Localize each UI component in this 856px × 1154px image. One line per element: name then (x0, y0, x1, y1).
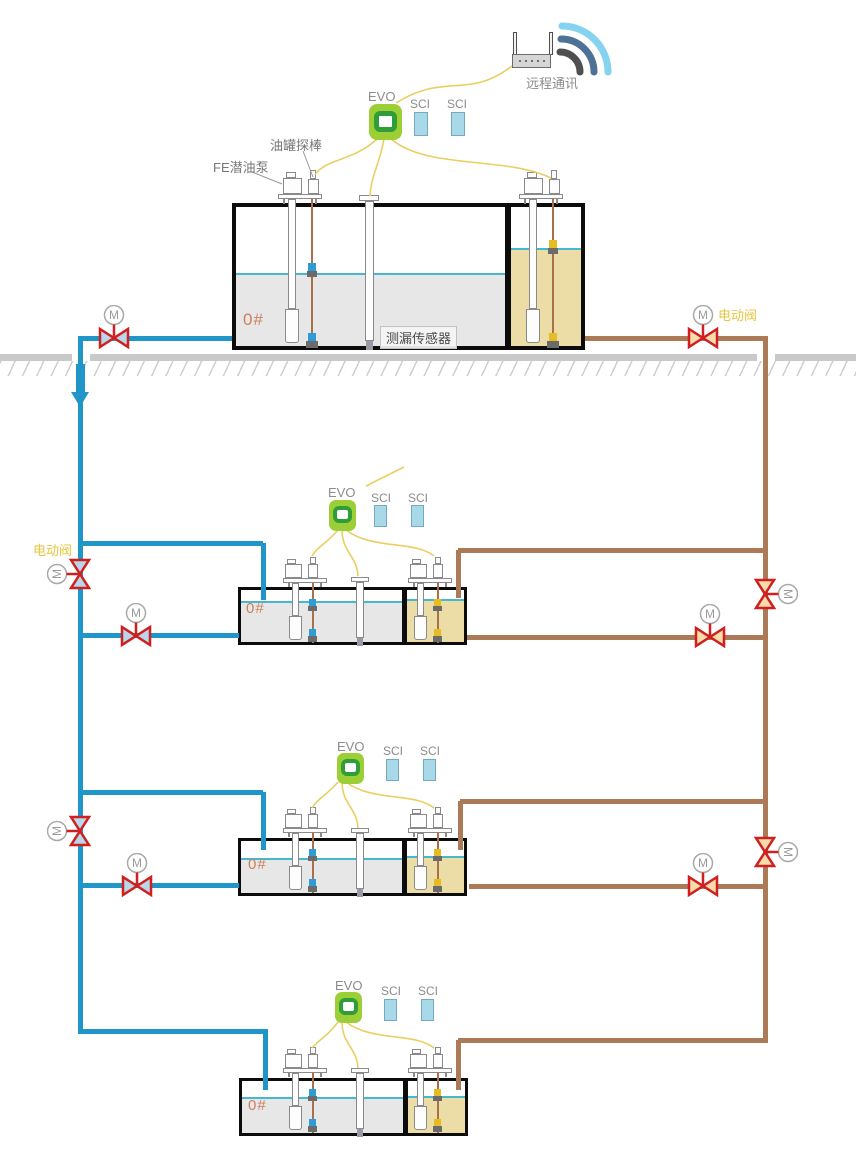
pipe-body (365, 201, 374, 341)
evo-controller (329, 500, 356, 531)
float-sensor (549, 333, 557, 341)
tank-probe-head (433, 814, 443, 828)
sci-module (423, 759, 436, 781)
fe-pump-motor (410, 564, 427, 578)
tank-probe-head (308, 1054, 318, 1068)
pipe-brown (458, 548, 766, 553)
fe-pump-motor (283, 178, 302, 194)
submersible-pump (289, 866, 302, 890)
fe-pump-motor (524, 178, 543, 194)
motor-label: M (781, 847, 795, 857)
pipe-blue (80, 790, 263, 795)
tank-probe-head (433, 564, 443, 578)
sci-module (384, 999, 397, 1021)
sci-label: SCI (408, 491, 428, 505)
router-led-dots (517, 59, 547, 63)
sci-module (451, 112, 465, 136)
pump-column (288, 199, 296, 309)
pipe-brown (458, 1038, 768, 1043)
pipe-blue (261, 543, 266, 600)
motor-valve: M (752, 830, 798, 874)
pipe-brown (585, 336, 768, 341)
sci-module (421, 999, 434, 1021)
probe-cap (310, 170, 316, 179)
fuel-grade-label: 0# (248, 1097, 267, 1114)
pipe-brown-main (763, 336, 768, 1043)
pipe-brown (456, 1040, 461, 1090)
tank-probe-head (308, 179, 319, 194)
motor-valve: M (688, 604, 732, 650)
evo-controller (335, 992, 362, 1023)
pipe-blue (80, 883, 239, 888)
motor-label: M (781, 589, 795, 599)
submersible-pump (414, 866, 427, 890)
sci-label: SCI (410, 97, 430, 111)
pipe-brown (460, 799, 766, 804)
submersible-pump (414, 1106, 427, 1130)
sci-module (386, 759, 399, 781)
evo-controller (369, 104, 402, 140)
sci-label: SCI (420, 744, 440, 758)
flow-arrow-down-icon (71, 392, 89, 407)
motor-label: M (698, 308, 708, 322)
diagram-canvas: 0# 测漏传感器 0# (0, 0, 856, 1154)
fe-pump-motor (410, 814, 427, 828)
ground-line (90, 354, 757, 361)
motor-valve: M (114, 603, 158, 649)
leak-sensor-label: 测漏传感器 (380, 326, 457, 349)
sci-label: SCI (383, 744, 403, 758)
motor-valve: M (752, 572, 798, 616)
sci-module (414, 112, 428, 136)
sci-label: SCI (447, 97, 467, 111)
motor-label: M (50, 826, 64, 836)
probe-cable (552, 199, 554, 342)
pipe-blue (263, 1031, 268, 1090)
motor-label: M (698, 856, 708, 870)
submersible-pump (414, 616, 427, 640)
sci-label: SCI (418, 984, 438, 998)
pipe-blue (261, 792, 266, 850)
float-sensor (308, 333, 316, 341)
probe-cap (551, 170, 557, 179)
pump-column (529, 199, 537, 309)
evo-label: EVO (328, 485, 355, 500)
evo-controller (337, 753, 364, 784)
cable-overlay (0, 0, 856, 1154)
sci-label: SCI (371, 491, 391, 505)
fuel-grade-label: 0# (248, 856, 267, 873)
sci-module (411, 505, 424, 527)
pipe-blue (80, 541, 263, 546)
ground-hatching (0, 361, 856, 376)
pipe-blue (80, 633, 239, 638)
tank-2-fuel-gray (241, 601, 402, 642)
fe-pump-motor (285, 1054, 302, 1068)
motor-label: M (131, 606, 141, 620)
motor-valve: M (92, 305, 136, 351)
fuel-grade-label: 0# (246, 600, 265, 617)
tank-probe-head (308, 814, 318, 828)
evo-label: EVO (368, 89, 395, 104)
router-antenna (513, 32, 517, 55)
ground-line (775, 354, 856, 361)
fe-pump-motor (285, 564, 302, 578)
pipe-tip (366, 341, 373, 350)
evo-label: EVO (335, 978, 362, 993)
fe-pump-label: FE潜油泵 (213, 157, 269, 176)
electric-valve-label: 电动阀 (33, 540, 72, 559)
motor-valve: M (115, 853, 159, 899)
motor-label: M (705, 607, 715, 621)
sci-label: SCI (381, 984, 401, 998)
tank-probe-head (549, 179, 560, 194)
submersible-pump (526, 309, 540, 343)
remote-comm-label: 远程通讯 (526, 73, 578, 92)
motor-label: M (109, 308, 119, 322)
tank-probe-head (433, 1054, 443, 1068)
router-antenna (549, 32, 553, 55)
tank-1-fuel-yellow (511, 248, 581, 346)
tank-probe-label: 油罐探棒 (270, 135, 322, 154)
flow-arrow-shaft (76, 364, 85, 394)
float-sensor (549, 240, 557, 248)
fe-pump-motor (285, 814, 302, 828)
electric-valve-label: 电动阀 (718, 305, 757, 324)
pipe-brown (458, 801, 463, 850)
pipe-blue-main (78, 336, 83, 1034)
motor-valve: M (47, 809, 93, 853)
submersible-pump (289, 1106, 302, 1130)
motor-valve: M (681, 853, 725, 899)
submersible-pump (289, 616, 302, 640)
wifi-signal-icon (560, 26, 608, 72)
ground-line (0, 354, 72, 361)
motor-label: M (50, 569, 64, 579)
tank-probe-head (308, 564, 318, 578)
evo-label: EVO (337, 739, 364, 754)
fe-pump-motor (410, 1054, 427, 1068)
motor-label: M (132, 856, 142, 870)
sci-module (374, 505, 387, 527)
fuel-grade-label: 0# (243, 310, 264, 330)
submersible-pump (285, 309, 299, 343)
pipe-blue (80, 1029, 268, 1034)
pipe-brown (456, 550, 461, 598)
float-sensor (308, 263, 316, 271)
